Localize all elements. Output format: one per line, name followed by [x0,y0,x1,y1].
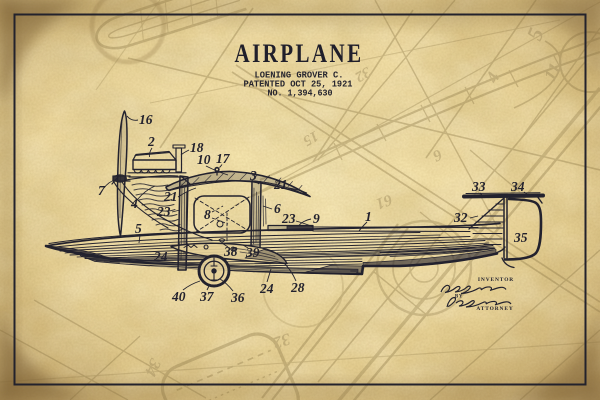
svg-text:33: 33 [471,179,486,194]
svg-text:3: 3 [249,168,257,183]
svg-text:ATTORNEY: ATTORNEY [476,306,513,312]
svg-text:21: 21 [163,189,178,204]
svg-text:9: 9 [313,211,320,226]
svg-text:24: 24 [153,249,168,264]
svg-text:24: 24 [259,281,274,296]
svg-text:23: 23 [281,211,296,226]
svg-text:10: 10 [197,152,211,167]
svg-text:35: 35 [513,230,528,245]
svg-text:28: 28 [290,280,305,295]
svg-text:NO. 1,394,630: NO. 1,394,630 [268,89,333,99]
svg-text:INVENTOR: INVENTOR [478,277,514,283]
svg-text:5: 5 [135,221,142,236]
svg-text:1: 1 [365,209,372,224]
svg-text:21: 21 [273,177,288,192]
svg-text:2: 2 [147,134,155,149]
svg-text:32: 32 [453,210,468,225]
svg-text:AIRPLANE: AIRPLANE [235,39,364,68]
svg-text:4: 4 [130,196,138,211]
svg-text:38: 38 [223,244,238,259]
svg-text:6: 6 [274,201,281,216]
svg-text:17: 17 [216,151,231,166]
svg-text:16: 16 [139,112,153,127]
svg-text:36: 36 [230,290,245,305]
svg-text:34: 34 [510,179,525,194]
svg-text:37: 37 [199,289,215,304]
svg-text:23: 23 [156,204,171,219]
svg-text:40: 40 [171,289,186,304]
svg-text:8: 8 [204,207,211,222]
svg-text:BY: BY [455,295,463,300]
